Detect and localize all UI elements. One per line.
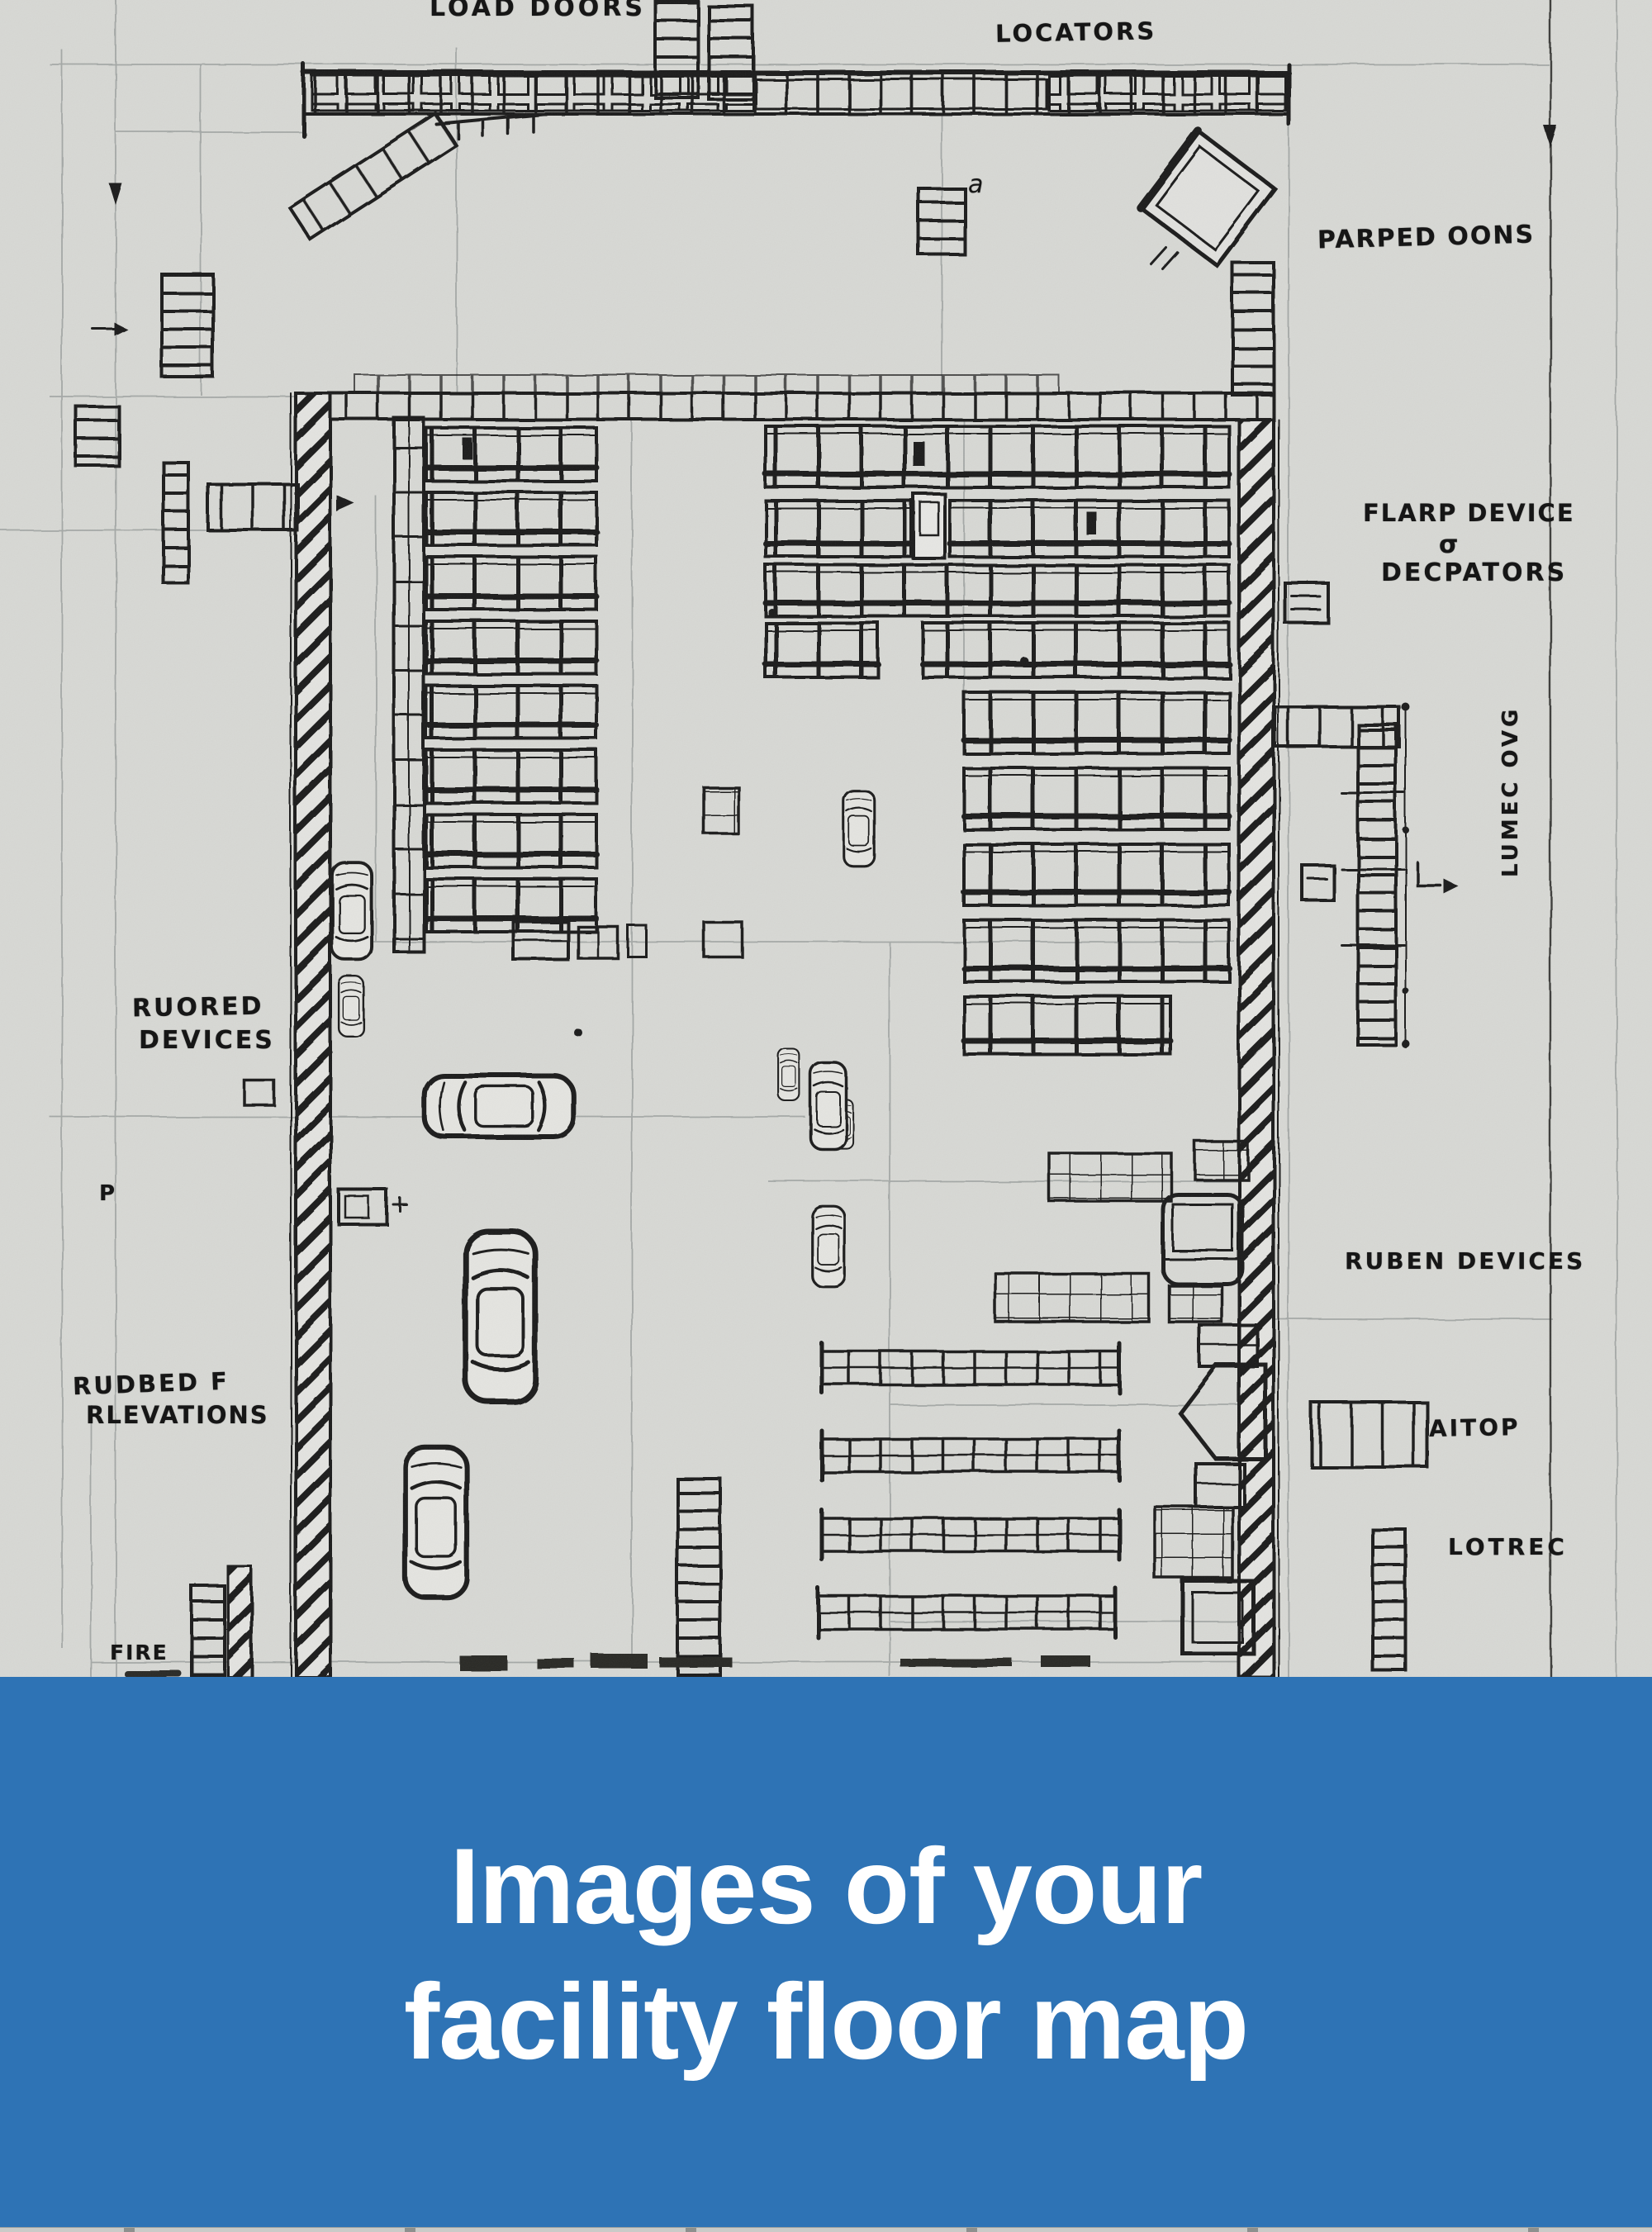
label-ruored: RUORED [132, 992, 264, 1023]
label-stray-p: P [99, 1181, 115, 1206]
label-locators: LOCATORS [995, 17, 1157, 47]
caption-line-1: Images of your [450, 1819, 1203, 1954]
bottom-paper-strip [0, 2227, 1652, 2232]
label-parped-oons: PARPED OONS [1317, 221, 1536, 255]
label-load-doors: LOAD DOORS [430, 0, 646, 22]
page: LOAD DOORS LOCATORS a PARPED OONS FLARP … [0, 0, 1652, 2232]
floor-plan: LOAD DOORS LOCATORS a PARPED OONS FLARP … [0, 0, 1652, 1677]
label-rlevations: RLEVATIONS [86, 1401, 269, 1429]
label-ruben-devices: RUBEN DEVICES [1345, 1247, 1585, 1275]
label-flarp-ampersand: σ [1439, 530, 1458, 559]
label-stray-a: a [968, 170, 983, 199]
label-decpators: DECPATORS [1381, 558, 1567, 587]
label-flarp-device: FLARP DEVICE [1363, 499, 1575, 527]
label-rudbed-f: RUDBED F [72, 1367, 230, 1401]
label-lotrec: LOTREC [1448, 1533, 1568, 1560]
label-devices: DEVICES [139, 1026, 275, 1055]
label-aitop: AITOP [1429, 1413, 1521, 1442]
label-fire: FIRE [110, 1641, 169, 1665]
label-vertical-note: LUMEC OVG [1498, 706, 1523, 877]
caption-line-2: facility floor map [404, 1954, 1248, 2090]
caption-banner: Images of your facility floor map [0, 1677, 1652, 2227]
